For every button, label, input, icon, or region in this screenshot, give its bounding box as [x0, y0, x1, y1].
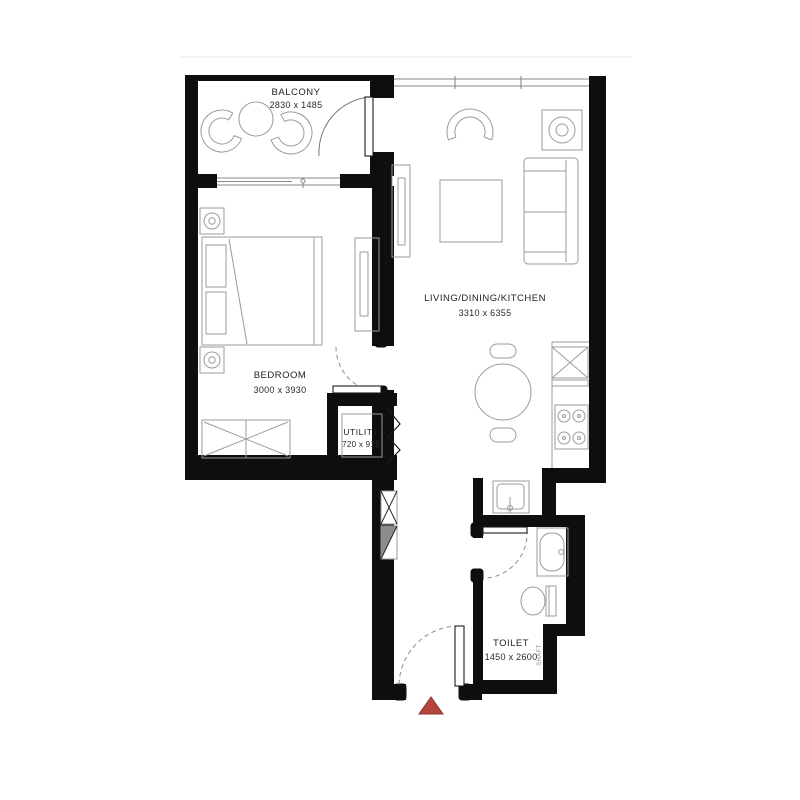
nightstand-bottom	[200, 347, 224, 373]
toilet-label: TOILET	[493, 638, 529, 649]
living-window	[394, 76, 589, 89]
floor-plan-page: BALCONY 2830 x 1485 BEDROOM 3000 x 3930 …	[0, 0, 800, 800]
wardrobe	[202, 420, 290, 458]
balcony-chair-left	[201, 110, 242, 152]
nightstand-top	[200, 208, 224, 234]
room-labels: BALCONY 2830 x 1485 BEDROOM 3000 x 3930 …	[254, 87, 546, 666]
coffee-table	[440, 180, 502, 242]
balcony-label: BALCONY	[272, 87, 321, 98]
wc-toilet	[521, 586, 556, 616]
dining-table	[475, 344, 531, 442]
utility-dims: 720 x 915	[342, 440, 380, 449]
entrance-marker	[419, 697, 443, 714]
bedroom-label: BEDROOM	[254, 370, 307, 381]
utility-label: UTILITY	[343, 427, 378, 437]
tv-console	[392, 165, 410, 257]
shaft-label: SHAFT	[537, 644, 543, 666]
living-dining-kitchen-dims: 3310 x 6355	[459, 308, 512, 318]
balcony-dims: 2830 x 1485	[270, 100, 323, 110]
balcony-table	[239, 102, 273, 136]
bedroom-door	[333, 347, 381, 393]
armchair	[447, 109, 493, 140]
sofa	[524, 158, 578, 264]
floor-plan-drawing: BALCONY 2830 x 1485 BEDROOM 3000 x 3930 …	[0, 0, 800, 800]
bedroom-balcony-sliding-door	[217, 178, 340, 188]
toilet-dims: 1450 x 2600	[485, 652, 538, 662]
bed	[202, 237, 322, 345]
side-table-lamp	[542, 110, 582, 150]
washbasin	[493, 481, 529, 513]
kitchen-sink-unit	[552, 347, 588, 386]
living-dining-kitchen-label: LIVING/DINING/KITCHEN	[424, 293, 546, 304]
vanity-basin	[537, 528, 568, 576]
walls	[185, 75, 606, 700]
balcony-chair-right	[271, 112, 312, 154]
bedroom-dims: 3000 x 3930	[254, 385, 307, 395]
toilet-door	[483, 527, 527, 578]
stove	[555, 405, 588, 449]
entrance-door	[399, 626, 464, 686]
balcony-door	[319, 97, 373, 156]
